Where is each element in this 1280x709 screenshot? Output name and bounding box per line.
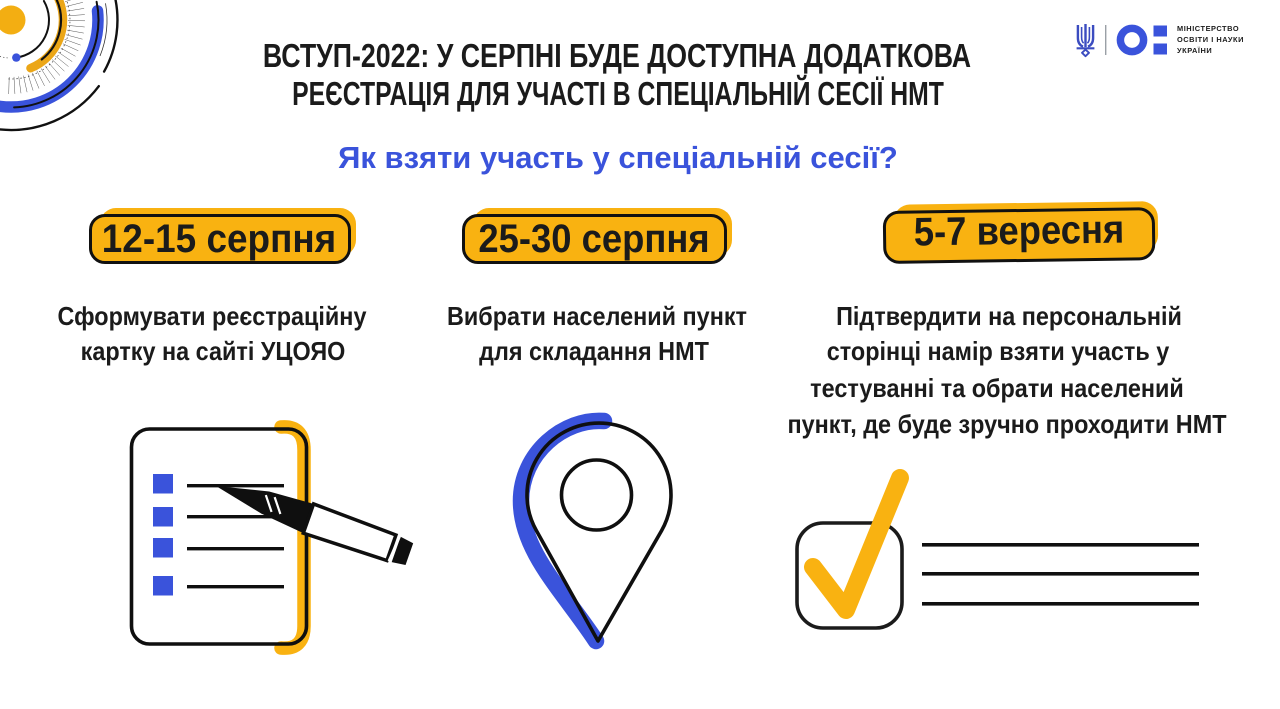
svg-text:УКРАЇНИ: УКРАЇНИ (1177, 46, 1212, 55)
svg-text:МІНІСТЕРСТВО: МІНІСТЕРСТВО (1177, 24, 1239, 33)
svg-text:ОСВІТИ І НАУКИ: ОСВІТИ І НАУКИ (1177, 35, 1244, 44)
